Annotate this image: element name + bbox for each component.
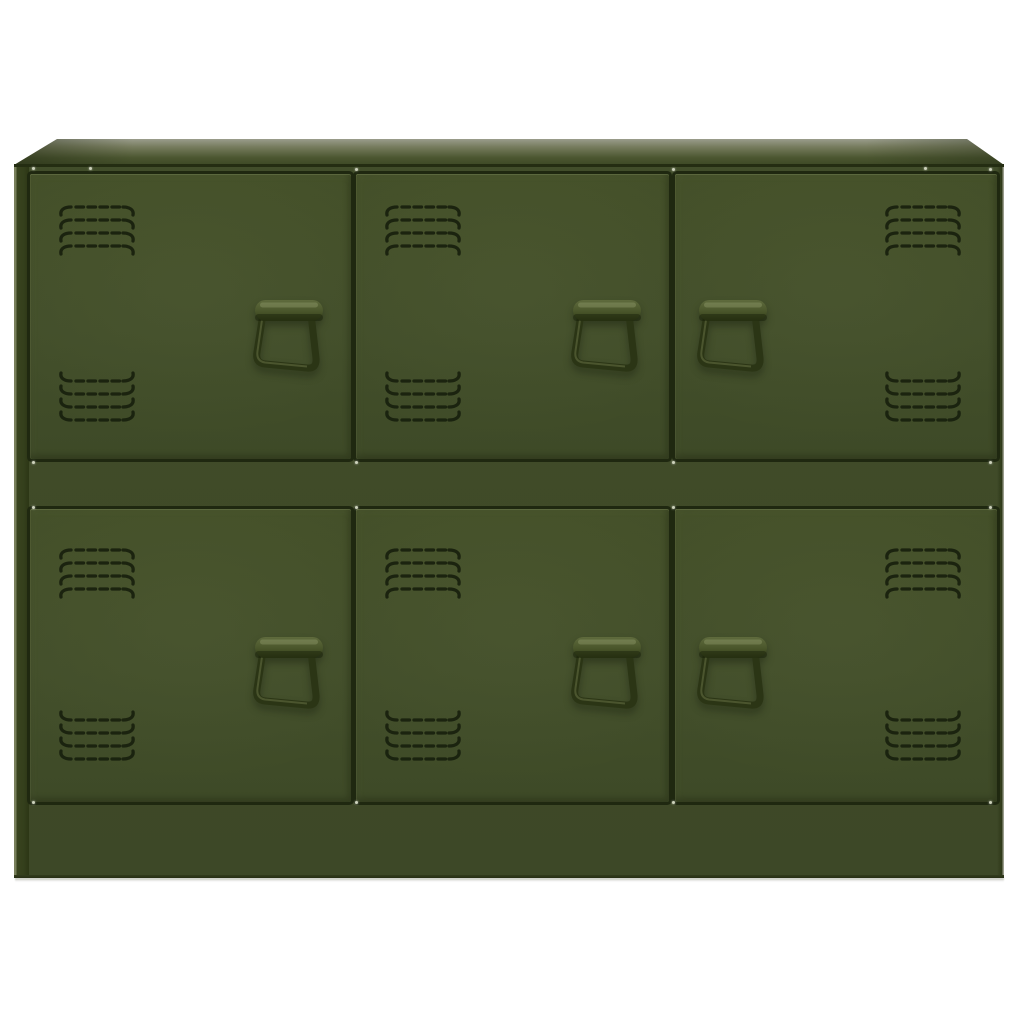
door-handle: [694, 635, 772, 717]
rivet: [989, 461, 992, 464]
cabinet-door-top-middle: [356, 174, 669, 459]
rivet: [89, 167, 92, 170]
rivet: [32, 167, 35, 170]
vent-grille-top: [57, 200, 137, 269]
door-handle: [568, 298, 646, 380]
rivet: [672, 801, 675, 804]
door-handle: [250, 298, 328, 380]
rivet: [355, 801, 358, 804]
rivet: [672, 168, 675, 171]
vent-grille-top: [57, 543, 137, 612]
cabinet-front: [14, 164, 1004, 878]
cabinet-door-bottom-right: [675, 509, 997, 802]
cabinet-side-edge-left: [14, 167, 29, 878]
vent-grille-bottom: [883, 703, 963, 772]
cabinet-door-bottom-left: [30, 509, 351, 802]
rivet: [672, 506, 675, 509]
rivet: [355, 168, 358, 171]
vent-grille-top: [383, 200, 463, 269]
door-handle: [568, 635, 646, 717]
rivet: [355, 461, 358, 464]
cabinet-door-bottom-middle: [356, 509, 669, 802]
door-handle: [694, 298, 772, 380]
vent-grille-top: [383, 543, 463, 612]
vent-grille-bottom: [383, 364, 463, 433]
door-handle: [250, 635, 328, 717]
rivet: [32, 461, 35, 464]
cabinet-door-top-left: [30, 174, 351, 459]
floor-shadow: [15, 878, 1004, 882]
rivet: [355, 506, 358, 509]
rivet: [924, 167, 927, 170]
cabinet-side-edge-right: [997, 167, 1004, 878]
rivet: [32, 506, 35, 509]
vent-grille-bottom: [57, 364, 137, 433]
cabinet-top-surface: [14, 139, 1004, 165]
product-photo-canvas: [0, 0, 1024, 1024]
vent-grille-top: [883, 543, 963, 612]
vent-grille-bottom: [383, 703, 463, 772]
rivet: [989, 801, 992, 804]
rivet: [989, 168, 992, 171]
vent-grille-top: [883, 200, 963, 269]
rivet: [672, 461, 675, 464]
cabinet-door-top-right: [675, 174, 997, 459]
vent-grille-bottom: [883, 364, 963, 433]
rivet: [32, 801, 35, 804]
rivet: [989, 506, 992, 509]
vent-grille-bottom: [57, 703, 137, 772]
